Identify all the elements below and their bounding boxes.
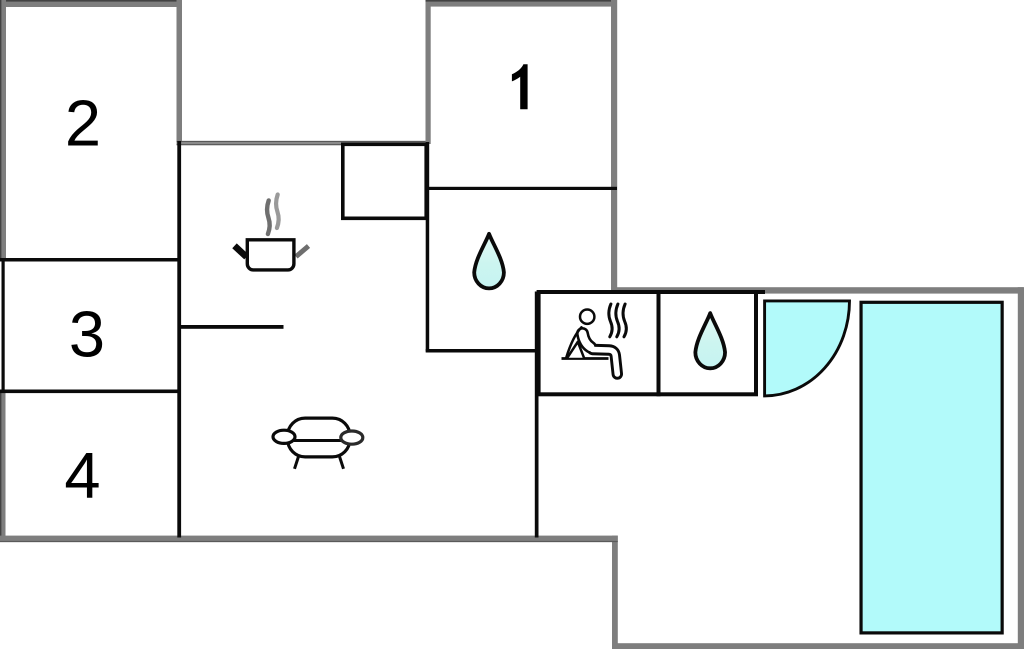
svg-text:3: 3 xyxy=(69,297,105,370)
svg-text:4: 4 xyxy=(64,438,100,511)
svg-text:2: 2 xyxy=(65,86,101,159)
